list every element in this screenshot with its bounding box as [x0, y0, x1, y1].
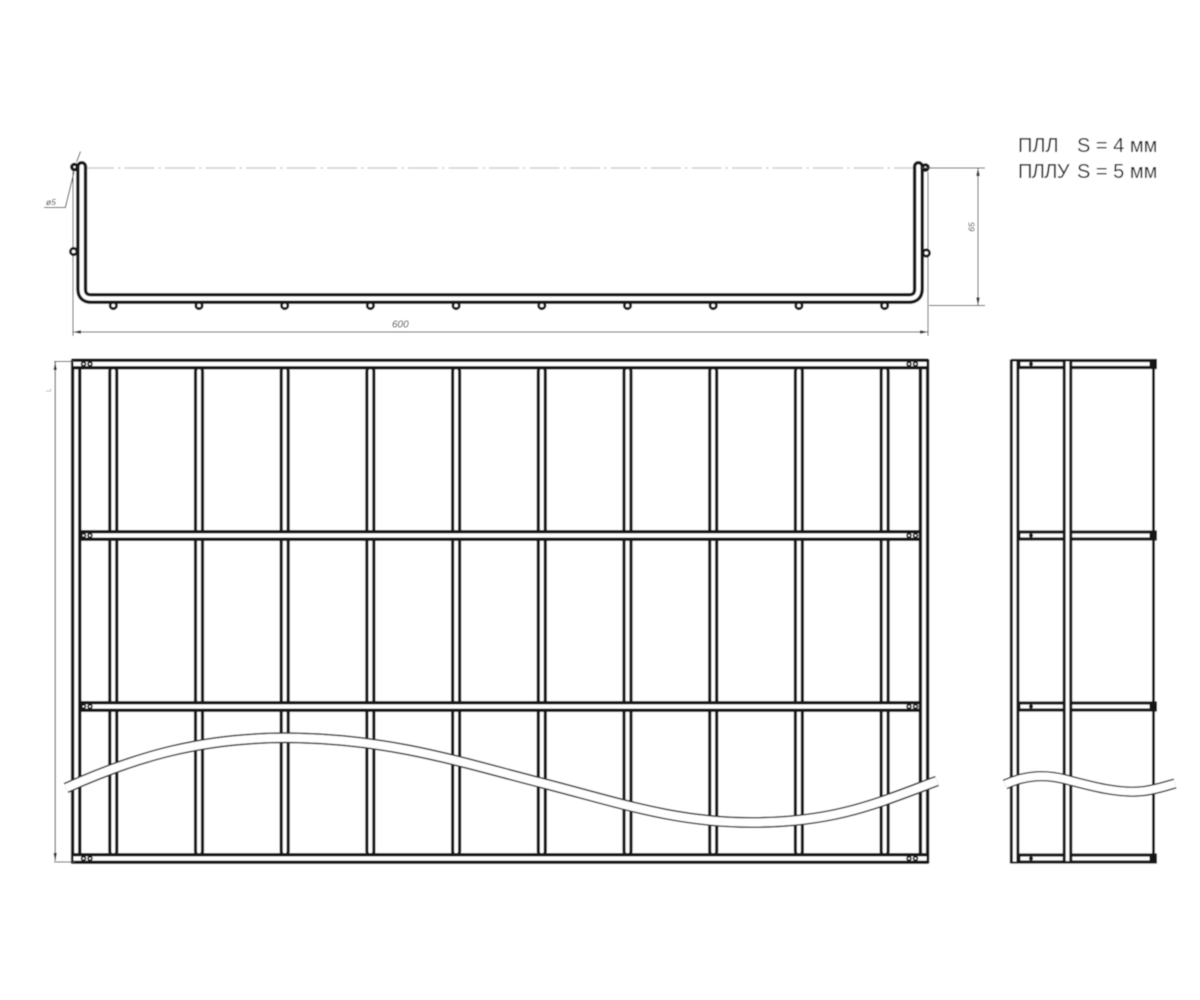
svg-text:600: 600: [392, 320, 409, 331]
svg-text:ПЛЛУ: ПЛЛУ: [1018, 161, 1070, 183]
svg-text:ø5: ø5: [46, 197, 56, 207]
svg-text:65: 65: [967, 222, 977, 232]
svg-text:ПЛЛ: ПЛЛ: [1018, 135, 1059, 157]
svg-text:S = 5 мм: S = 5 мм: [1077, 161, 1157, 183]
svg-text:L: L: [46, 388, 53, 392]
svg-text:S = 4 мм: S = 4 мм: [1077, 135, 1157, 157]
